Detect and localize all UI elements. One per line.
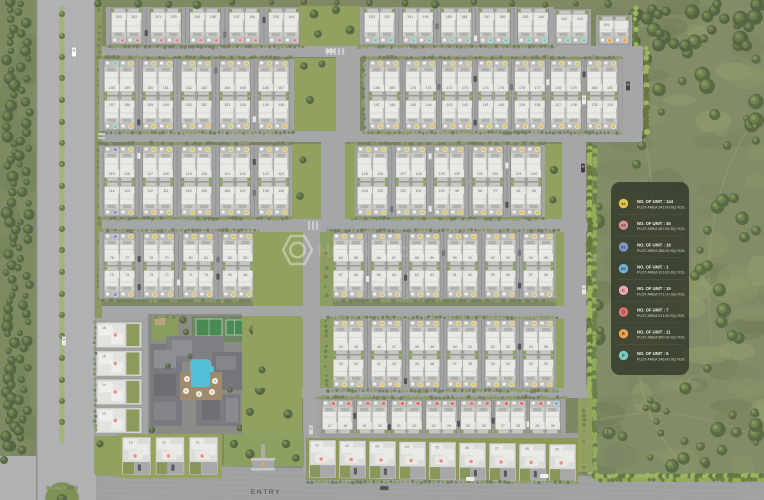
svg-text:172: 172 xyxy=(446,86,452,90)
svg-text:141: 141 xyxy=(483,103,489,107)
svg-text:68: 68 xyxy=(243,273,247,277)
svg-text:179: 179 xyxy=(571,86,577,90)
svg-text:07: 07 xyxy=(495,447,499,451)
svg-text:01: 01 xyxy=(315,444,319,448)
svg-text:158: 158 xyxy=(109,86,115,90)
svg-text:137: 137 xyxy=(555,103,561,107)
svg-text:147: 147 xyxy=(374,103,380,107)
svg-text:200: 200 xyxy=(171,15,177,19)
svg-text:97: 97 xyxy=(493,189,497,193)
svg-text:29: 29 xyxy=(535,424,539,428)
svg-text:202: 202 xyxy=(131,15,137,19)
svg-text:123: 123 xyxy=(263,172,269,176)
svg-text:186: 186 xyxy=(499,15,505,19)
svg-text:76: 76 xyxy=(110,256,114,260)
svg-text:160: 160 xyxy=(147,86,153,90)
svg-text:90: 90 xyxy=(453,256,457,260)
svg-text:101: 101 xyxy=(416,189,422,193)
svg-text:14: 14 xyxy=(102,383,106,387)
svg-text:55: 55 xyxy=(544,345,548,349)
svg-text:178: 178 xyxy=(555,86,561,90)
svg-text:109: 109 xyxy=(201,189,207,193)
svg-text:129: 129 xyxy=(439,172,445,176)
svg-text:161: 161 xyxy=(163,86,169,90)
svg-text:189: 189 xyxy=(446,15,452,19)
svg-text:130: 130 xyxy=(454,172,460,176)
svg-text:143: 143 xyxy=(577,17,583,21)
svg-text:154: 154 xyxy=(163,103,169,107)
svg-text:108: 108 xyxy=(224,189,230,193)
svg-text:28: 28 xyxy=(516,424,520,428)
svg-text:121: 121 xyxy=(224,172,230,176)
svg-text:132: 132 xyxy=(492,172,498,176)
svg-text:94: 94 xyxy=(529,256,533,260)
svg-text:159: 159 xyxy=(124,86,130,90)
svg-text:195: 195 xyxy=(273,15,279,19)
svg-text:37: 37 xyxy=(453,362,457,366)
svg-text:91: 91 xyxy=(468,256,472,260)
svg-text:30: 30 xyxy=(551,424,555,428)
svg-text:57: 57 xyxy=(529,273,533,277)
svg-text:139: 139 xyxy=(519,103,525,107)
svg-text:146: 146 xyxy=(389,103,395,107)
svg-text:15: 15 xyxy=(102,355,106,359)
svg-text:95: 95 xyxy=(544,256,548,260)
svg-text:174: 174 xyxy=(483,86,489,90)
svg-text:47: 47 xyxy=(392,345,396,349)
svg-text:38: 38 xyxy=(430,362,434,366)
svg-text:112: 112 xyxy=(147,189,153,193)
svg-text:190: 190 xyxy=(423,15,429,19)
svg-text:127: 127 xyxy=(400,172,406,176)
svg-text:48: 48 xyxy=(415,345,419,349)
svg-text:71: 71 xyxy=(189,273,193,277)
svg-text:167: 167 xyxy=(278,86,284,90)
svg-text:152: 152 xyxy=(201,103,207,107)
svg-text:105: 105 xyxy=(278,189,284,193)
svg-text:80: 80 xyxy=(189,256,193,260)
svg-text:13: 13 xyxy=(129,441,133,445)
svg-text:192: 192 xyxy=(384,15,390,19)
svg-text:54: 54 xyxy=(529,345,533,349)
svg-text:26: 26 xyxy=(482,424,486,428)
svg-text:100: 100 xyxy=(439,189,445,193)
svg-text:141: 141 xyxy=(604,23,610,27)
svg-text:65: 65 xyxy=(377,273,381,277)
svg-text:199: 199 xyxy=(194,15,200,19)
svg-text:107: 107 xyxy=(240,189,246,193)
svg-text:62: 62 xyxy=(430,273,434,277)
svg-text:39: 39 xyxy=(415,362,419,366)
svg-text:134: 134 xyxy=(607,103,613,107)
svg-text:193: 193 xyxy=(369,15,375,19)
svg-text:201: 201 xyxy=(155,15,161,19)
svg-text:52: 52 xyxy=(491,345,495,349)
svg-text:04: 04 xyxy=(405,445,409,449)
svg-text:106: 106 xyxy=(263,189,269,193)
svg-text:113: 113 xyxy=(124,189,130,193)
svg-text:16: 16 xyxy=(102,326,106,330)
svg-text:73: 73 xyxy=(149,273,153,277)
svg-text:75: 75 xyxy=(110,273,114,277)
svg-text:164: 164 xyxy=(224,86,230,90)
svg-text:77: 77 xyxy=(125,256,129,260)
svg-text:66: 66 xyxy=(354,273,358,277)
svg-text:148: 148 xyxy=(278,103,284,107)
svg-text:12: 12 xyxy=(162,441,166,445)
svg-text:45: 45 xyxy=(354,345,358,349)
svg-text:40: 40 xyxy=(392,362,396,366)
svg-text:69: 69 xyxy=(228,273,232,277)
svg-text:06: 06 xyxy=(465,446,469,450)
svg-text:83: 83 xyxy=(243,256,247,260)
svg-text:42: 42 xyxy=(354,362,358,366)
svg-text:145: 145 xyxy=(410,103,416,107)
svg-text:138: 138 xyxy=(535,103,541,107)
svg-text:171: 171 xyxy=(426,86,432,90)
svg-text:196: 196 xyxy=(249,15,255,19)
svg-text:117: 117 xyxy=(147,172,153,176)
svg-text:21: 21 xyxy=(397,424,401,428)
svg-text:176: 176 xyxy=(519,86,525,90)
svg-text:115: 115 xyxy=(109,172,115,176)
svg-text:198: 198 xyxy=(210,15,216,19)
svg-text:99: 99 xyxy=(455,189,459,193)
svg-text:18: 18 xyxy=(343,424,347,428)
svg-text:114: 114 xyxy=(109,189,115,193)
svg-text:180: 180 xyxy=(592,86,598,90)
svg-text:36: 36 xyxy=(468,362,472,366)
svg-text:27: 27 xyxy=(501,424,505,428)
svg-text:13: 13 xyxy=(102,412,106,416)
svg-text:92: 92 xyxy=(491,256,495,260)
svg-text:23: 23 xyxy=(432,424,436,428)
svg-text:104: 104 xyxy=(362,189,368,193)
svg-text:25: 25 xyxy=(466,424,470,428)
svg-text:70: 70 xyxy=(204,273,208,277)
svg-text:188: 188 xyxy=(461,15,467,19)
svg-text:134: 134 xyxy=(531,172,537,176)
svg-text:17: 17 xyxy=(328,424,332,428)
svg-text:126: 126 xyxy=(377,172,383,176)
svg-text:181: 181 xyxy=(607,86,613,90)
svg-text:103: 103 xyxy=(377,189,383,193)
svg-text:191: 191 xyxy=(407,15,413,19)
svg-text:20: 20 xyxy=(378,424,382,428)
svg-text:131: 131 xyxy=(477,172,483,176)
svg-text:63: 63 xyxy=(415,273,419,277)
svg-text:119: 119 xyxy=(186,172,192,176)
svg-text:22: 22 xyxy=(412,424,416,428)
svg-text:56: 56 xyxy=(544,273,548,277)
svg-text:144: 144 xyxy=(426,103,432,107)
svg-text:32: 32 xyxy=(544,362,548,366)
svg-text:98: 98 xyxy=(478,189,482,193)
svg-text:116: 116 xyxy=(124,172,130,176)
svg-text:64: 64 xyxy=(392,273,396,277)
svg-text:151: 151 xyxy=(224,103,230,107)
svg-text:165: 165 xyxy=(240,86,246,90)
svg-text:163: 163 xyxy=(201,86,207,90)
svg-text:58: 58 xyxy=(506,273,510,277)
svg-text:110: 110 xyxy=(186,189,192,193)
svg-text:133: 133 xyxy=(515,172,521,176)
svg-text:197: 197 xyxy=(234,15,240,19)
svg-text:162: 162 xyxy=(186,86,192,90)
svg-text:67: 67 xyxy=(339,273,343,277)
svg-text:35: 35 xyxy=(491,362,495,366)
svg-text:142: 142 xyxy=(462,103,468,107)
svg-text:79: 79 xyxy=(165,256,169,260)
svg-text:59: 59 xyxy=(491,273,495,277)
svg-text:124: 124 xyxy=(278,172,284,176)
svg-text:82: 82 xyxy=(228,256,232,260)
svg-text:74: 74 xyxy=(125,273,129,277)
svg-text:02: 02 xyxy=(345,444,349,448)
svg-text:118: 118 xyxy=(163,172,169,176)
svg-text:187: 187 xyxy=(484,15,490,19)
svg-text:175: 175 xyxy=(498,86,504,90)
svg-text:177: 177 xyxy=(535,86,541,90)
svg-text:153: 153 xyxy=(186,103,192,107)
svg-text:128: 128 xyxy=(416,172,422,176)
svg-text:120: 120 xyxy=(201,172,207,176)
svg-text:155: 155 xyxy=(147,103,153,107)
svg-text:150: 150 xyxy=(240,103,246,107)
svg-text:203: 203 xyxy=(116,15,122,19)
svg-text:72: 72 xyxy=(165,273,169,277)
svg-text:125: 125 xyxy=(362,172,368,176)
svg-text:46: 46 xyxy=(377,345,381,349)
svg-text:136: 136 xyxy=(571,103,577,107)
svg-text:166: 166 xyxy=(263,86,269,90)
svg-text:93: 93 xyxy=(506,256,510,260)
svg-text:185: 185 xyxy=(522,15,528,19)
svg-text:19: 19 xyxy=(362,424,366,428)
svg-text:51: 51 xyxy=(468,345,472,349)
svg-text:44: 44 xyxy=(339,345,343,349)
svg-text:60: 60 xyxy=(468,273,472,277)
svg-text:34: 34 xyxy=(506,362,510,366)
svg-text:09: 09 xyxy=(555,448,559,452)
svg-text:95: 95 xyxy=(532,189,536,193)
svg-text:156: 156 xyxy=(124,103,130,107)
svg-text:194: 194 xyxy=(288,15,294,19)
svg-text:78: 78 xyxy=(149,256,153,260)
svg-text:81: 81 xyxy=(204,256,208,260)
svg-text:49: 49 xyxy=(430,345,434,349)
svg-text:184: 184 xyxy=(538,15,544,19)
svg-text:102: 102 xyxy=(400,189,406,193)
svg-text:168: 168 xyxy=(374,86,380,90)
svg-text:169: 169 xyxy=(389,86,395,90)
svg-text:111: 111 xyxy=(163,189,168,193)
svg-text:61: 61 xyxy=(453,273,457,277)
svg-text:96: 96 xyxy=(516,189,520,193)
svg-text:41: 41 xyxy=(377,362,381,366)
svg-text:24: 24 xyxy=(447,424,451,428)
svg-text:03: 03 xyxy=(375,445,379,449)
svg-text:05: 05 xyxy=(435,446,439,450)
svg-text:140: 140 xyxy=(498,103,504,107)
svg-text:143: 143 xyxy=(446,103,452,107)
svg-text:173: 173 xyxy=(462,86,468,90)
svg-text:08: 08 xyxy=(525,447,529,451)
svg-text:50: 50 xyxy=(453,345,457,349)
svg-text:122: 122 xyxy=(240,172,246,176)
svg-text:135: 135 xyxy=(592,103,598,107)
svg-text:43: 43 xyxy=(339,362,343,366)
svg-text:33: 33 xyxy=(529,362,533,366)
svg-text:149: 149 xyxy=(263,103,269,107)
svg-text:170: 170 xyxy=(410,86,416,90)
svg-text:157: 157 xyxy=(109,103,115,107)
svg-text:11: 11 xyxy=(196,441,200,445)
svg-text:53: 53 xyxy=(506,345,510,349)
svg-text:142: 142 xyxy=(561,17,567,21)
